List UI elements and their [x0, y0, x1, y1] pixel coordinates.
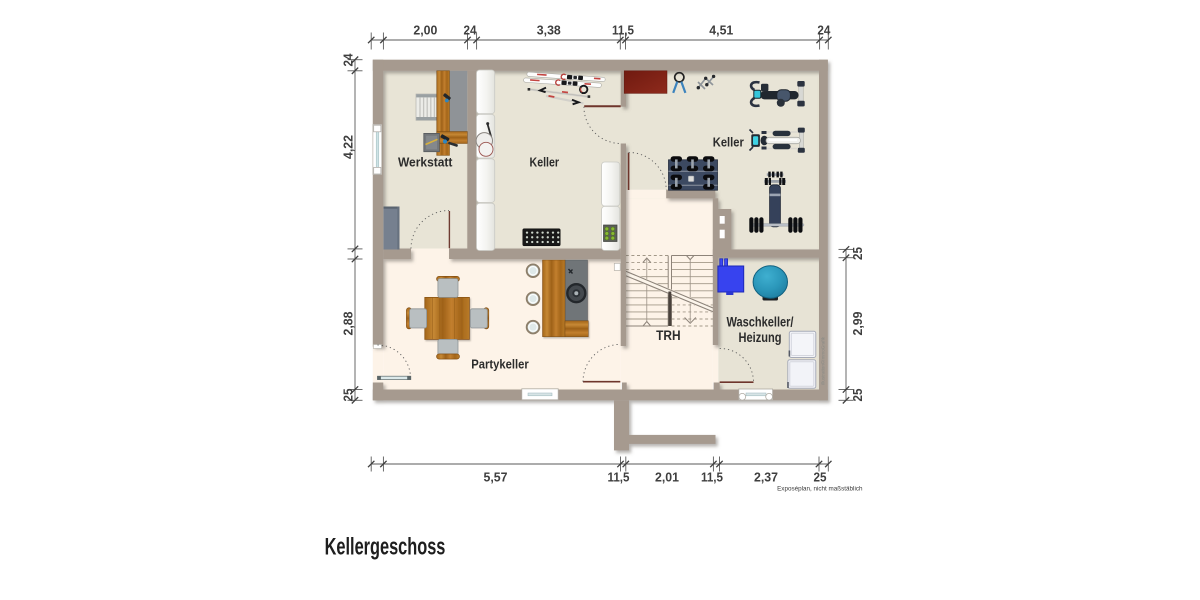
svg-text:3,38: 3,38 — [537, 23, 561, 38]
svg-text:24: 24 — [817, 23, 831, 38]
svg-text:4,22: 4,22 — [341, 135, 356, 159]
svg-text:5,57: 5,57 — [484, 470, 508, 485]
svg-text:2,01: 2,01 — [655, 470, 679, 485]
svg-text:2,99: 2,99 — [850, 312, 865, 336]
svg-text:25: 25 — [850, 389, 865, 402]
svg-text:Illustration©ImmoGrafik: Illustration©ImmoGrafik — [820, 336, 826, 385]
svg-text:11,5: 11,5 — [608, 470, 630, 485]
svg-text:2,37: 2,37 — [754, 470, 778, 485]
svg-text:Heizung: Heizung — [739, 329, 782, 345]
svg-text:Keller: Keller — [530, 154, 560, 169]
svg-text:2,88: 2,88 — [341, 312, 356, 336]
svg-text:Exposéplan, nicht maßstäblich: Exposéplan, nicht maßstäblich — [777, 486, 863, 493]
svg-text:11,5: 11,5 — [701, 470, 723, 485]
svg-text:Keller: Keller — [713, 134, 744, 149]
svg-text:25: 25 — [341, 389, 356, 402]
svg-text:11,5: 11,5 — [612, 23, 634, 38]
svg-text:2,00: 2,00 — [413, 23, 437, 38]
svg-text:24: 24 — [341, 53, 356, 67]
svg-text:TRH: TRH — [656, 328, 681, 343]
svg-text:25: 25 — [814, 470, 827, 485]
svg-text:Waschkeller/: Waschkeller/ — [727, 314, 794, 330]
svg-text:4,51: 4,51 — [709, 23, 733, 38]
svg-text:24: 24 — [464, 23, 478, 38]
svg-text:Partykeller: Partykeller — [471, 356, 529, 371]
svg-text:Kellergeschoss: Kellergeschoss — [325, 534, 446, 561]
svg-text:Werkstatt: Werkstatt — [398, 154, 453, 169]
svg-text:25: 25 — [850, 247, 865, 260]
